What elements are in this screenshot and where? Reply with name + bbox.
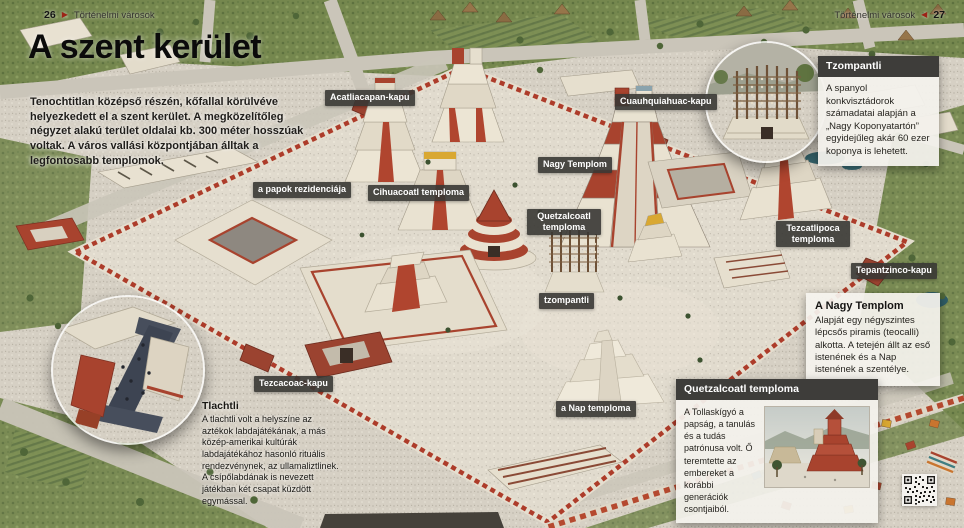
section-title-left: Történelmi városok bbox=[74, 10, 155, 21]
page-number-left: 26 bbox=[44, 9, 56, 21]
tzompantli-rack bbox=[545, 229, 604, 292]
callout-nagy-templom: A Nagy Templom Alapját egy négyszintes l… bbox=[806, 293, 940, 386]
page-title: A szent kerület bbox=[28, 28, 261, 67]
callout-tzompantli-body: A spanyol konkvisztádorok számadatai ala… bbox=[818, 77, 939, 166]
callout-nagy-templom-body: Alapját egy négyszintes lépcsős piramis … bbox=[815, 315, 931, 377]
callout-tzompantli-title: Tzompantli bbox=[818, 56, 939, 77]
map-label-cuauhquiahuac-kapu: Cuauhquiahuac-kapu bbox=[615, 94, 717, 110]
inset-tlachtli-detail bbox=[51, 295, 205, 445]
page-arrow-left-icon: ◀ bbox=[921, 11, 927, 19]
page-number-right: 27 bbox=[933, 9, 945, 21]
section-title-right: Történelmi városok bbox=[834, 10, 915, 21]
inset-tzompantli-detail bbox=[705, 41, 827, 163]
map-label-tezcacoac-kapu: Tezcacoac-kapu bbox=[254, 376, 333, 392]
map-label-nap-temploma: a Nap temploma bbox=[556, 401, 636, 417]
book-spread: 26 ▶ Történelmi városok Történelmi város… bbox=[0, 0, 964, 528]
map-label-tzompantli: tzompantli bbox=[539, 293, 594, 309]
callout-quetzalcoatl-title: Quetzalcoatl temploma bbox=[676, 379, 878, 400]
map-label-tezcatlipoca: Tezcatlipoca temploma bbox=[776, 221, 850, 247]
intro-paragraph: Tenochtitlan középső részén, kőfallal kö… bbox=[30, 95, 326, 168]
page-header-left: 26 ▶ Történelmi városok bbox=[44, 9, 155, 21]
map-label-cihuacoatl: Cihuacoatl temploma bbox=[368, 185, 469, 201]
page-arrow-right-icon: ▶ bbox=[62, 11, 68, 19]
tlachtli-detail-illustration bbox=[53, 297, 203, 443]
map-label-quetzalcoatl: Quetzalcoatl temploma bbox=[527, 209, 601, 235]
tlachtli-text-block: Tlachtli A tlachtli volt a helyszíne az … bbox=[202, 400, 344, 508]
map-label-tepantzinco-kapu: Tepantzinco-kapu bbox=[851, 263, 937, 279]
bottom-shadow-structure bbox=[320, 512, 504, 528]
callout-quetzalcoatl: Quetzalcoatl temploma A Tollaskígyó a pa… bbox=[676, 379, 878, 523]
callout-nagy-templom-title: A Nagy Templom bbox=[815, 300, 931, 312]
map-label-nagy-templom: Nagy Templom bbox=[538, 157, 612, 173]
callout-quetzalcoatl-body: A Tollaskígyó a papság, a tanulás és a t… bbox=[684, 406, 757, 515]
page-header-right: Történelmi városok ◀ 27 bbox=[834, 9, 945, 21]
map-label-papok-rezidenciaja: a papok rezidenciája bbox=[253, 182, 351, 198]
tlachtli-title: Tlachtli bbox=[202, 400, 344, 412]
tlachtli-body: A tlachtli volt a helyszíne az aztékok l… bbox=[202, 414, 344, 508]
tzompantli-detail-illustration bbox=[707, 43, 825, 161]
quetzalcoatl-temple-photo bbox=[764, 406, 870, 488]
callout-tzompantli: Tzompantli A spanyol konkvisztádorok szá… bbox=[818, 56, 939, 166]
map-label-acatliacapan-kapu: Acatliacapan-kapu bbox=[325, 90, 415, 106]
qr-code bbox=[902, 474, 937, 506]
